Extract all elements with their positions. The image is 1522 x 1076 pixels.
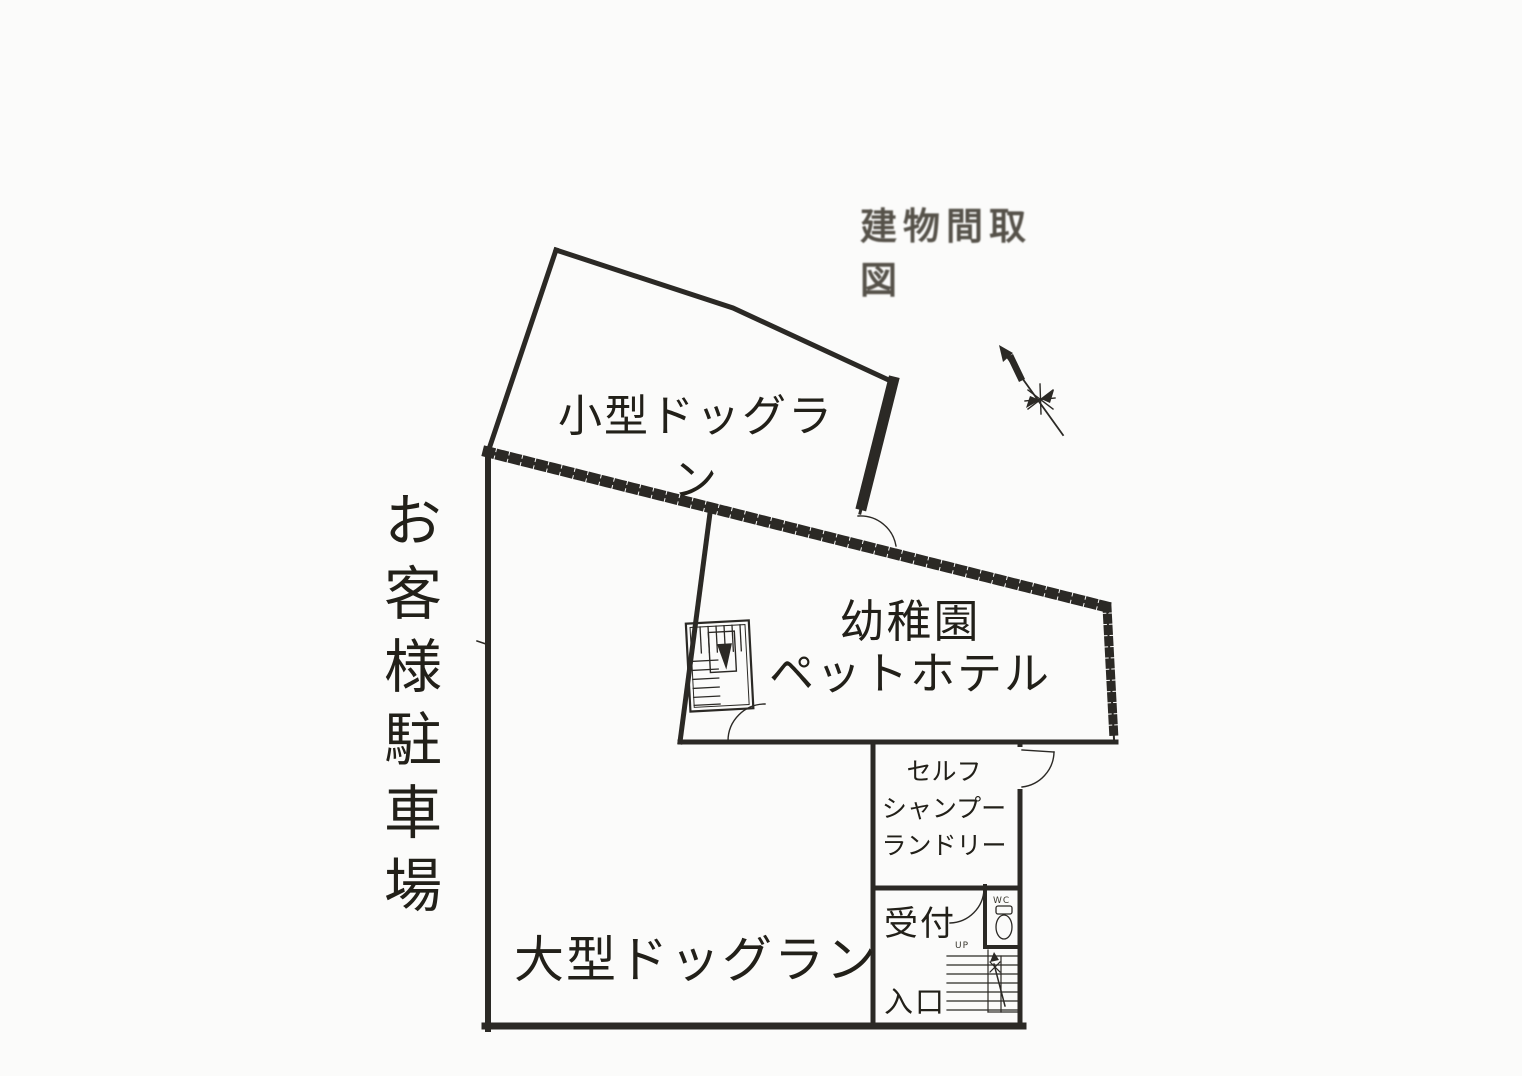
pet-hotel-label: 幼稚園 ペットホテル [742,596,1078,700]
pet-hotel-label-line2: ペットホテル [742,648,1078,700]
floor-plan-page: 建物間取図 お客様駐車場 小型ドッグラン 幼稚園 ペットホテル セルフ シャンプ… [0,0,1522,1076]
self-shampoo-label-line2: シャンプー [876,790,1012,827]
self-shampoo-label: セルフ シャンプー ランドリー [876,753,1012,864]
floor-plan-drawing [0,0,1522,1076]
self-room-door-arc [1022,752,1054,787]
north-arrow-icon [999,345,1063,435]
self-shampoo-label-line1: セルフ [876,753,1012,790]
plan-title-stamp: 建物間取図 [860,196,1070,304]
stairs-up-label: UP [955,941,969,951]
toilet-icon [996,906,1012,939]
self-shampoo-label-line3: ランドリー [876,827,1012,864]
pet-hotel-label-line1: 幼稚園 [742,596,1078,648]
entrance-label: 入口 [884,979,946,1021]
large-dog-run-label: 大型ドッグラン [514,920,878,992]
reception-label: 受付 [884,896,956,945]
self-room-door-leaf [1022,750,1054,752]
customer-parking-label: お客様駐車場 [366,490,450,928]
small-dog-run-label: 小型ドッグラン [538,380,854,508]
wc-label: WC [993,896,1010,906]
staircase-lower [947,950,1018,1012]
